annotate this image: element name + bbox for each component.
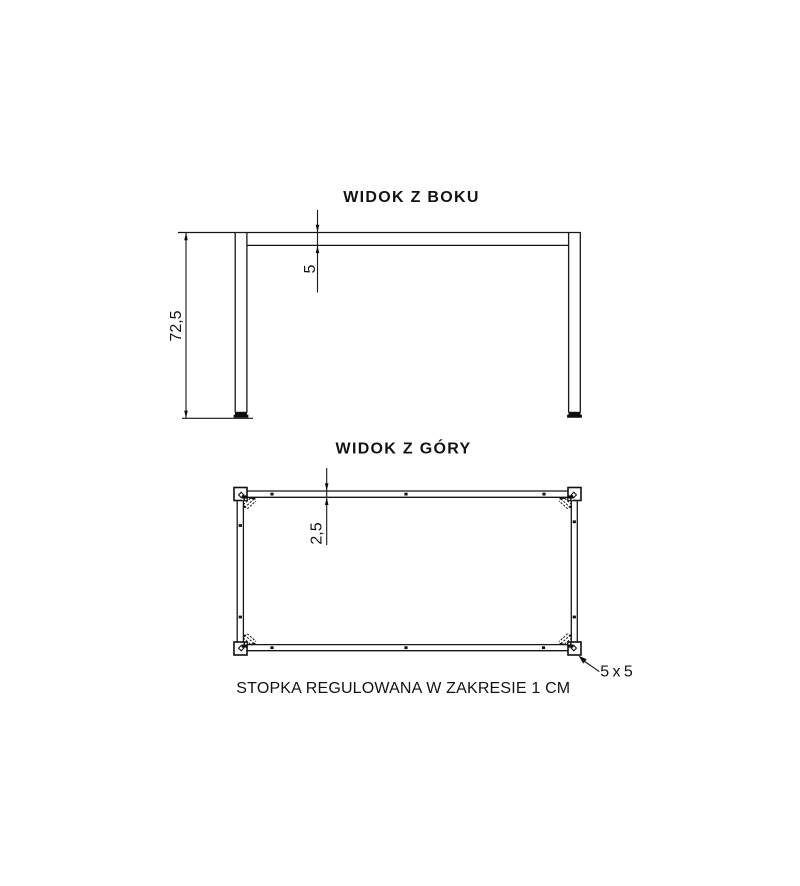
svg-text:72,5: 72,5 — [168, 310, 185, 341]
svg-text:WIDOK Z BOKU: WIDOK Z BOKU — [343, 189, 479, 206]
svg-text:5 x 5: 5 x 5 — [600, 663, 633, 680]
svg-text:STOPKA REGULOWANA W ZAKRESIE 1: STOPKA REGULOWANA W ZAKRESIE 1 CM — [236, 680, 570, 697]
svg-text:2,5: 2,5 — [308, 522, 325, 544]
svg-text:5: 5 — [302, 264, 319, 273]
svg-text:WIDOK Z GÓRY: WIDOK Z GÓRY — [336, 439, 472, 458]
